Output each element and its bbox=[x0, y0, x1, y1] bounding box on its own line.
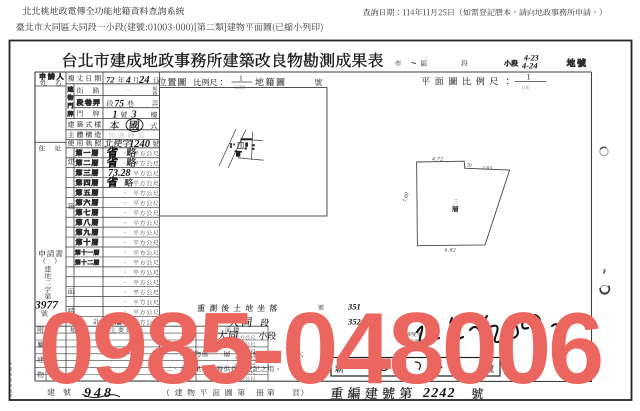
svg-text:4.72: 4.72 bbox=[432, 156, 443, 162]
svg-text:.70: .70 bbox=[466, 164, 473, 169]
svg-text:1: 1 bbox=[239, 74, 243, 83]
svg-text:100: 100 bbox=[521, 86, 530, 92]
svg-text:4-24: 4-24 bbox=[521, 61, 538, 71]
svg-text:7.60: 7.60 bbox=[403, 192, 411, 203]
svg-text:1200: 1200 bbox=[234, 85, 246, 91]
svg-text:4: 4 bbox=[125, 76, 131, 86]
svg-text:0985-048006: 0985-048006 bbox=[39, 293, 602, 405]
svg-text:75: 75 bbox=[115, 99, 125, 109]
svg-text:24: 24 bbox=[138, 75, 150, 86]
svg-text:1: 1 bbox=[527, 72, 531, 82]
svg-text:~: ~ bbox=[126, 87, 130, 95]
svg-text:1: 1 bbox=[113, 109, 118, 120]
svg-text:6.82: 6.82 bbox=[445, 248, 457, 254]
svg-text:1240: 1240 bbox=[129, 139, 151, 150]
svg-text:72: 72 bbox=[106, 75, 115, 85]
svg-text:2.63: 2.63 bbox=[482, 165, 492, 171]
